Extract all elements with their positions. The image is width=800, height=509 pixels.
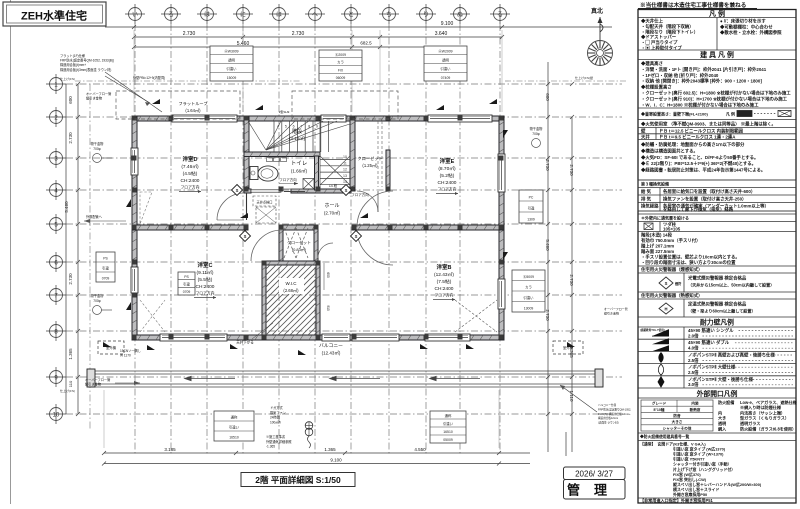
svg-text:Low-e、ペアガラス、遮熱仕様: Low-e、ペアガラス、遮熱仕様 (740, 399, 798, 405)
svg-text:6: 6 (293, 125, 295, 129)
svg-text:第３種換気設備: 第３種換気設備 (641, 181, 669, 187)
svg-text:り: り (423, 12, 429, 19)
svg-text:Ⓐ2009: Ⓐ2009 (335, 52, 346, 57)
svg-text:フロア方向: フロア方向 (435, 293, 454, 298)
svg-text:光電式煙災警報器 検定合格品: 光電式煙災警報器 検定合格品 (687, 275, 747, 282)
svg-text:大き: 大き (718, 415, 726, 421)
svg-text:9.100: 9.100 (330, 458, 342, 463)
svg-text:(2.68㎡): (2.68㎡) (283, 287, 299, 293)
svg-text:引違い: 引違い (440, 66, 451, 71)
svg-text:透明: 透明 (442, 57, 449, 62)
svg-text:2.5倍: 2.5倍 (688, 369, 699, 376)
svg-text:2.5倍: 2.5倍 (688, 357, 699, 364)
svg-text:を経由して廊下が換気（排気）経路: を経由して廊下が換気（排気）経路 (663, 206, 734, 213)
svg-text:S: S (665, 281, 668, 286)
svg-text:引違い: 引違い (443, 421, 454, 426)
svg-text:グレード: グレード (652, 401, 667, 406)
svg-text:ほ: ほ (276, 12, 282, 19)
svg-text:各居室に給気口を設置（取付け高さ天井-600）: 各居室に給気口を設置（取付け高さ天井-600） (662, 188, 755, 195)
svg-text:は: は (204, 12, 210, 19)
svg-text:1.365: 1.365 (324, 447, 336, 452)
svg-text:2026/ 3/27: 2026/ 3/27 (575, 470, 613, 479)
svg-text:4: 4 (277, 125, 279, 129)
svg-text:（天井から15cm以上、50cm以内離して設置）: （天井から15cm以上、50cm以内離して設置） (688, 282, 774, 288)
svg-text:100㎥/h: 100㎥/h (270, 419, 281, 424)
svg-text:と: と (348, 12, 354, 19)
svg-text:構造用合板(t)mm+: 構造用合板(t)mm+ (60, 62, 86, 67)
svg-text:(9.11㎡): (9.11㎡) (197, 269, 214, 276)
svg-text:フロア方向: フロア方向 (279, 177, 297, 182)
svg-text:◆畳寄設置高さ：畳壁下端(FL+2100): ◆畳寄設置高さ：畳壁下端(FL+2100) (640, 111, 708, 117)
svg-text:引違い: 引違い (229, 425, 240, 430)
svg-text:E’10種: E’10種 (654, 407, 665, 412)
svg-text:室外機: 室外機 (106, 345, 117, 350)
svg-text:カラ: カラ (525, 284, 532, 289)
svg-text:ⒶW2009: ⒶW2009 (438, 49, 452, 54)
svg-text:CH:2400: CH:2400 (435, 286, 454, 292)
svg-text:換気経路: 換気経路 (641, 202, 659, 209)
svg-text:住宅用火災警報器（煙感知式）: 住宅用火災警報器（煙感知式） (641, 266, 702, 273)
svg-text:引違: 引違 (183, 281, 190, 286)
svg-text:ホール: ホール (324, 203, 339, 209)
svg-text:24時間: 24時間 (270, 415, 280, 420)
svg-text:600: 600 (68, 96, 73, 104)
svg-text:外壁PBt=12+9(内壁同): 外壁PBt=12+9(内壁同) (133, 75, 165, 80)
svg-text:ドガ方式: ドガ方式 (270, 405, 284, 410)
svg-text:(4.5帖): (4.5帖) (183, 170, 198, 177)
svg-text:3.0倍: 3.0倍 (688, 381, 699, 388)
svg-text:(1.25㎡): (1.25㎡) (362, 162, 378, 168)
svg-text:凡 例: 凡 例 (726, 111, 735, 117)
svg-text:内装: 内装 (691, 401, 699, 406)
svg-text:16510: 16510 (229, 436, 239, 440)
svg-text:内: 内 (718, 409, 722, 415)
svg-text:引違: 引違 (528, 205, 535, 210)
svg-text:縦引き金物: 縦引き金物 (604, 311, 619, 316)
svg-text:・▣ 上枠取付タイプ: ・▣ 上枠取付タイプ (641, 45, 682, 52)
svg-text:2.730: 2.730 (68, 132, 73, 144)
svg-text:W 1170: W 1170 (120, 354, 131, 358)
svg-text:FRP防水(認定番号QM-1052,: FRP防水(認定番号QM-1052, (598, 407, 631, 411)
svg-text:建 具 凡 例: 建 具 凡 例 (700, 50, 734, 59)
svg-text:S: S (244, 234, 247, 239)
svg-text:◆Ｅ 22(2階り)：PBt=12.5＋t=9(+) 36t: ◆Ｅ 22(2階り)：PBt=12.5＋t=9(+) 36t=2(不燃40)とす… (640, 160, 756, 167)
svg-text:天井下がる: 天井下がる (236, 340, 254, 345)
svg-text:CH:2400: CH:2400 (196, 284, 215, 290)
svg-text:オーバーフロー管: オーバーフロー管 (85, 377, 110, 382)
svg-text:フロア方向: フロア方向 (351, 192, 369, 197)
svg-text:◆防蟻・防腐処理：地盤面からの高さ1ｍ以下の部分: ◆防蟻・防腐処理：地盤面からの高さ1ｍ以下の部分 (640, 141, 745, 148)
svg-text:引違: 引違 (102, 266, 109, 271)
svg-text:外壁通気詳細参照: 外壁通気詳細参照 (266, 439, 292, 444)
svg-text:階段: 階段 (292, 128, 302, 135)
svg-text:15009: 15009 (227, 76, 237, 80)
svg-text:定温式熱災警報器 検定合格品: 定温式熱災警報器 検定合格品 (688, 301, 747, 308)
svg-text:住宅用火災警報器（熱感知式）: 住宅用火災警報器（熱感知式） (641, 292, 702, 299)
svg-text:構造用合板(t)3mm(表面塗 ラウン材): 構造用合板(t)3mm(表面塗 ラウン材) (60, 67, 111, 72)
svg-text:＊外壁内に通気層を設ける: ＊外壁内に通気層を設ける (641, 215, 689, 221)
svg-text:8: 8 (308, 125, 310, 129)
svg-text:真北: 真北 (591, 7, 603, 15)
svg-text:PS: PS (103, 257, 108, 261)
svg-text:ⒶW3009: ⒶW3009 (224, 49, 238, 54)
svg-text:フロア方向: フロア方向 (181, 185, 200, 190)
svg-text:0709: 0709 (102, 277, 110, 281)
svg-text:構造用合板12mm: 構造用合板12mm (598, 416, 618, 420)
svg-text:FRP防水(認定番号QM-1052, 1933(B)): FRP防水(認定番号QM-1052, 1933(B)) (60, 58, 114, 63)
svg-text:仕上げ(FN)壁: 仕上げ(FN)壁 (575, 75, 593, 80)
svg-text:換気ファン: 換気ファン (270, 410, 286, 415)
svg-text:通称: 通称 (445, 413, 452, 418)
svg-text:13: 13 (343, 174, 347, 178)
svg-text:◆火気使用室 （準不燃QM-0903、または同等品） ※最上: ◆火気使用室 （準不燃QM-0903、または同等品） ※最上階は除く。 (640, 121, 776, 128)
svg-text:3.185: 3.185 (164, 447, 176, 452)
svg-text:(5.5帖): (5.5帖) (198, 276, 213, 283)
svg-text:W.I.C: W.I.C (286, 281, 298, 286)
svg-text:天井点検口: 天井点検口 (257, 200, 273, 205)
svg-text:カラ: カラ (337, 60, 344, 65)
svg-text:トイレ: トイレ (291, 161, 308, 167)
svg-text:排 気: 排 気 (641, 196, 652, 203)
svg-text:引違い: 引違い (523, 295, 534, 300)
svg-text:網入: 網入 (718, 425, 727, 431)
svg-text:洋室B: 洋室B (437, 263, 452, 271)
svg-text:防火設備: 防火設備 (718, 399, 734, 405)
svg-text:2.730: 2.730 (292, 31, 305, 37)
svg-text:バルコニー: バルコニー (319, 343, 343, 349)
svg-text:物干金物: 物干金物 (91, 293, 105, 298)
svg-text:内法高さ（サッシ上端）: 内法高さ（サッシ上端） (740, 409, 785, 415)
svg-text:105×105: 105×105 (663, 227, 681, 232)
svg-text:110: 110 (68, 380, 73, 387)
svg-text:断熱窓: 断熱窓 (690, 407, 701, 412)
svg-text:(遮蔽教育TOL.T使用): (遮蔽教育TOL.T使用) (640, 328, 665, 332)
svg-text:H: H (664, 307, 667, 312)
svg-text:10: 10 (343, 155, 347, 159)
svg-text:2型SH9: 2型SH9 (279, 109, 290, 114)
svg-text:煙符: 煙符 (675, 281, 682, 286)
svg-text:オーバーフロー管: オーバーフロー管 (604, 306, 628, 311)
svg-text:◆火気FD：SF-60I であること、D/FF-6より50番: ◆火気FD：SF-60I であること、D/FF-6より50番手とする。 (640, 154, 758, 161)
svg-text:外部開口凡例: 外部開口凡例 (697, 389, 738, 398)
svg-text:S: S (345, 188, 348, 193)
svg-text:洋室C: 洋室C (198, 261, 213, 269)
svg-text:給 気: 給 気 (641, 188, 652, 195)
svg-text:700φ: 700φ (93, 147, 100, 151)
svg-text:3.640: 3.640 (435, 31, 448, 37)
svg-text:(5.2帖): (5.2帖) (440, 172, 455, 179)
svg-text:(12.43㎡): (12.43㎡) (322, 350, 341, 356)
svg-text:(表面塗 ラウン材): (表面塗 ラウン材) (598, 421, 619, 425)
svg-text:05009: 05009 (443, 438, 453, 442)
svg-text:（壁・梁より60cm以上離して設置）: （壁・梁より60cm以上離して設置） (688, 308, 756, 314)
svg-text:700φ: 700φ (532, 132, 539, 136)
svg-text:682.5: 682.5 (360, 41, 372, 46)
svg-text:5: 5 (285, 125, 287, 129)
svg-text:10: 10 (53, 413, 60, 419)
svg-text:600: 600 (545, 93, 550, 101)
svg-text:(1.66㎡): (1.66㎡) (291, 168, 308, 174)
svg-text:オーバーフロー管: オーバーフロー管 (86, 91, 111, 96)
svg-text:16510: 16510 (443, 430, 453, 434)
svg-text:06009: 06009 (336, 76, 346, 80)
svg-text:換気ファンを設置（取付け高さ天井-250）: 換気ファンを設置（取付け高さ天井-250） (663, 196, 746, 203)
svg-text:ぬ: ぬ (457, 12, 463, 19)
svg-text:仕上げ(FN): 仕上げ(FN) (60, 76, 75, 81)
svg-text:ノボパンSTPⅡ 真壁および真壁・後勝ち仕様: ノボパンSTPⅡ 真壁および真壁・後勝ち仕様 (688, 351, 775, 358)
svg-text:ち: ち (386, 12, 392, 19)
svg-text:2.730: 2.730 (68, 273, 73, 285)
svg-text:防火設備（ガラスt6.8を使用）: 防火設備（ガラスt6.8を使用） (740, 425, 796, 431)
svg-text:CH:2400: CH:2400 (438, 180, 457, 186)
svg-text:透明ガラス: 透明ガラス (740, 420, 760, 426)
svg-text:防音: 防音 (673, 413, 681, 418)
svg-text:2.0倍: 2.0倍 (688, 332, 699, 339)
svg-text:PS: PS (184, 275, 189, 279)
svg-text:S: S (355, 234, 358, 239)
svg-text:洋室D: 洋室D (183, 155, 198, 163)
svg-text:室外機: 室外機 (563, 345, 574, 350)
svg-text:管理: 管理 (567, 483, 621, 498)
svg-text:(2.70㎡): (2.70㎡) (324, 210, 341, 216)
svg-text:12: 12 (343, 168, 347, 172)
svg-text:縦引き金物: 縦引き金物 (86, 96, 103, 101)
svg-text:・回り段の踏面寸法は、狭い方より30cmの位置: ・回り段の踏面寸法は、狭い方より30cmの位置 (641, 259, 736, 266)
svg-text:フロア方向: フロア方向 (438, 187, 457, 192)
svg-text:5.460: 5.460 (64, 201, 69, 213)
svg-text:910: 910 (326, 305, 330, 311)
svg-text:フラット(1F)仕様: フラット(1F)仕様 (60, 53, 86, 58)
svg-text:(7.5帖): (7.5帖) (437, 278, 452, 285)
svg-text:型ガラス（くもりガラス）: 型ガラス（くもりガラス） (740, 415, 789, 421)
svg-text:0709: 0709 (183, 290, 191, 294)
svg-text:1933(B)) 構造用合板12mm+: 1933(B)) 構造用合板12mm+ (598, 412, 631, 416)
svg-text:フロア方向: フロア方向 (196, 291, 215, 296)
svg-text:07409: 07409 (441, 76, 451, 80)
svg-text:600: 600 (326, 272, 330, 278)
svg-text:9.100: 9.100 (441, 21, 454, 27)
svg-text:外開き窓扉採用P50: 外開き窓扉採用P50 (672, 492, 707, 497)
svg-text:ろ: ろ (168, 12, 174, 19)
svg-text:ZEH水準住宅: ZEH水準住宅 (21, 9, 87, 23)
svg-text:【非常用進入口指定】外開き窓採用P51: 【非常用進入口指定】外開き窓採用P51 (640, 497, 714, 503)
svg-text:2.730: 2.730 (569, 274, 574, 286)
svg-text:7: 7 (300, 125, 302, 129)
svg-text:2階 平面詳細図 S:1/50: 2階 平面詳細図 S:1/50 (255, 475, 341, 485)
svg-text:(12.43㎡): (12.43㎡) (434, 271, 454, 278)
svg-text:S: S (236, 188, 239, 193)
svg-text:ＰＢ t＝12.5 ビニールクロス 内装制限範囲: ＰＢ t＝12.5 ビニールクロス 内装制限範囲 (659, 127, 744, 134)
svg-text:(7.46㎡): (7.46㎡) (181, 163, 199, 170)
svg-text:14: 14 (343, 180, 347, 184)
svg-text:2.730: 2.730 (545, 309, 550, 321)
svg-text:縦引き金物: 縦引き金物 (85, 382, 102, 387)
svg-text:9: 9 (316, 125, 318, 129)
svg-text:凡 例: 凡 例 (709, 9, 725, 18)
svg-text:1.365: 1.365 (68, 348, 73, 360)
svg-text:◆構造は構造図面共とする。: ◆構造は構造図面共とする。 (640, 147, 698, 154)
svg-text:クローゼット: クローゼット (357, 155, 382, 162)
svg-text:仕上げ(FN): 仕上げ(FN) (60, 388, 75, 393)
svg-text:へ: へ (312, 13, 318, 19)
svg-text:4.0倍: 4.0倍 (688, 345, 699, 352)
svg-text:洋室E: 洋室E (440, 157, 455, 165)
svg-text:る: る (497, 12, 503, 19)
svg-text:◆経路図書・転居防止対策は、平成24年告示第1447号による: ◆経路図書・転居防止対策は、平成24年告示第1447号による。 (640, 167, 765, 174)
svg-text:外部配管へ: 外部配管へ (86, 214, 103, 219)
svg-text:・W．I．C：H=1800 ※枕棚が付かない場合は下地のみ施: ・W．I．C：H=1800 ※枕棚が付かない場合は下地のみ施工 (641, 101, 759, 108)
svg-text:バルコニー仕様: バルコニー仕様 (598, 403, 617, 407)
svg-text:2.730: 2.730 (569, 164, 574, 176)
svg-text:-1.365: -1.365 (266, 445, 275, 449)
svg-text:(1.64㎡): (1.64㎡) (185, 107, 201, 113)
svg-text:◆防火設備使用建具番号一覧: ◆防火設備使用建具番号一覧 (639, 434, 690, 439)
svg-text:通称: 通称 (231, 415, 238, 420)
svg-text:引違い: 引違い (226, 66, 237, 71)
svg-text:物干金物: 物干金物 (530, 126, 544, 131)
svg-text:大きさ: 大きさ (672, 419, 683, 424)
svg-text:CH:2400: CH:2400 (181, 178, 200, 184)
svg-text:11: 11 (343, 161, 347, 165)
svg-text:2.730: 2.730 (545, 159, 550, 171)
svg-text:2.730: 2.730 (183, 31, 196, 37)
svg-text:13009: 13009 (524, 306, 534, 310)
svg-text:700φ: 700φ (93, 299, 100, 303)
svg-text:(3.10㎡): (3.10㎡) (289, 135, 306, 141)
svg-text:い: い (132, 12, 138, 19)
svg-text:4.550: 4.550 (414, 447, 426, 452)
svg-text:5.460: 5.460 (545, 239, 550, 251)
svg-text:◆散水栓・立水栓：外構図参照: ◆散水栓・立水栓：外構図参照 (719, 29, 782, 36)
svg-text:壁: 壁 (641, 127, 646, 134)
svg-text:に: に (240, 12, 246, 19)
svg-text:※網入り時は防煙仕様: ※網入り時は防煙仕様 (740, 404, 782, 410)
svg-text:物干金物: 物干金物 (91, 141, 105, 146)
svg-text:FIX: FIX (338, 68, 344, 72)
svg-text:耐力壁凡例: 耐力壁凡例 (700, 318, 734, 327)
svg-text:※施工基準書: ※施工基準書 (266, 434, 285, 439)
svg-text:透明: 透明 (228, 57, 235, 62)
svg-text:※当仕様書は木造住宅工事仕様書を兼ねる: ※当仕様書は木造住宅工事仕様書を兼ねる (640, 1, 746, 9)
svg-text:シャッターその他: シャッターその他 (663, 425, 692, 430)
svg-text:(8.70㎡): (8.70㎡) (438, 165, 456, 172)
svg-text:Ⓐ5009: Ⓐ5009 (523, 274, 534, 279)
svg-text:14 段: 14 段 (329, 183, 338, 188)
svg-text:15CNソ一隅し: 15CNソ一隅し (120, 348, 141, 353)
svg-text:透明: 透明 (718, 420, 726, 426)
svg-text:1309: 1309 (527, 217, 535, 221)
svg-text:PC: PC (529, 195, 534, 199)
